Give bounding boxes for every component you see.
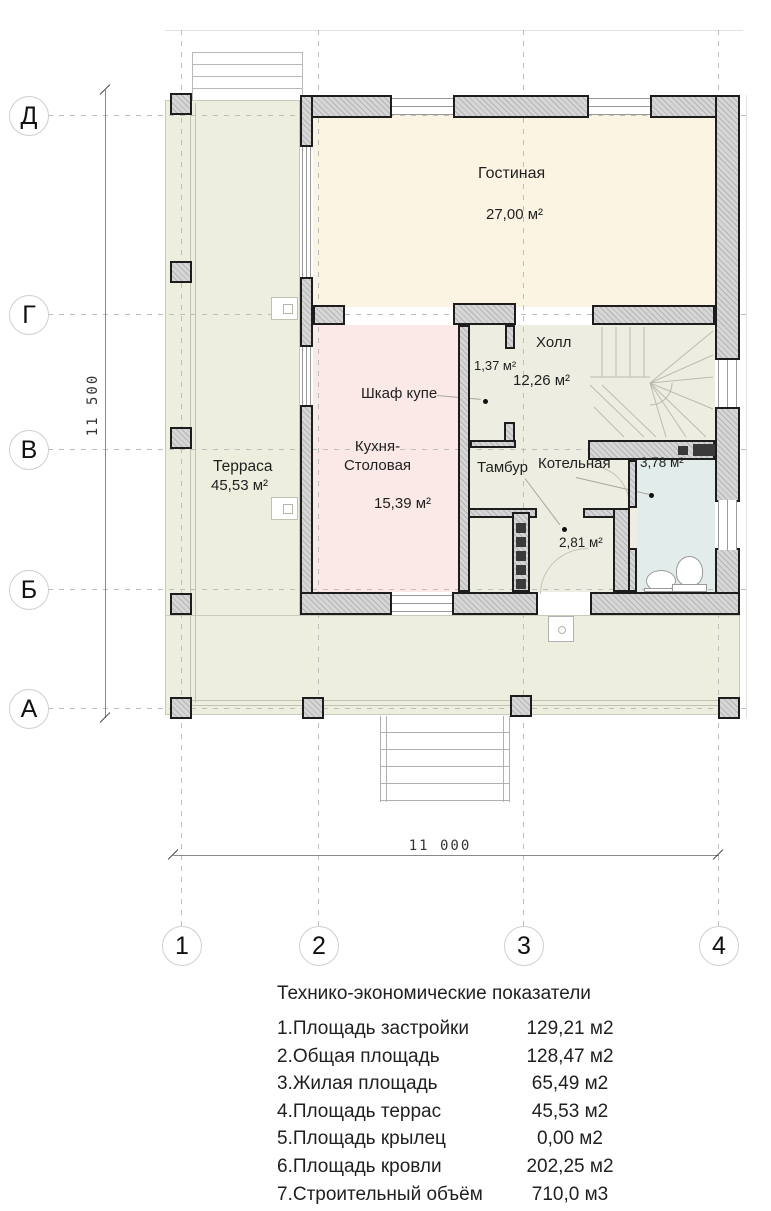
radiator-segment	[516, 523, 526, 533]
axis-label: 3	[517, 932, 531, 961]
wall-exterior-bottom	[452, 592, 538, 615]
room-label-living-area: 27,00 м²	[486, 206, 543, 223]
terrace-steps-top	[192, 52, 303, 100]
axis-label: 2	[312, 932, 326, 961]
window	[718, 360, 737, 407]
axis-label: В	[21, 436, 38, 465]
toilet-bowl	[676, 556, 703, 586]
room-label-terrace-area: 45,53 м²	[211, 477, 268, 494]
summary-row-value: 129,21 м2	[495, 1018, 645, 1040]
column	[510, 695, 532, 717]
equipment-block	[678, 446, 688, 455]
floor-plan-sheet: { "axes": { "rows": ["Д", "Г", "В", "Б",…	[0, 0, 771, 1200]
wall-interior-living	[313, 305, 345, 325]
summary-row-value: 0,00 м2	[495, 1128, 645, 1150]
room-label-vestibule-area: 2,81 м²	[559, 535, 603, 550]
column	[170, 93, 192, 115]
drain-symbol-circle	[558, 626, 566, 634]
summary-row: 1.Площадь застройки 129,21 м2	[277, 1018, 645, 1040]
wall-exterior-top	[453, 95, 589, 118]
wall-exterior-left	[300, 95, 313, 147]
axis-label: Б	[21, 576, 37, 605]
summary-row-value: 65,49 м2	[495, 1073, 645, 1095]
dimension-line-vertical	[105, 90, 106, 718]
radiator-segment	[516, 579, 526, 589]
grid-line-row-a	[48, 708, 748, 709]
axis-label: 4	[712, 932, 726, 961]
column	[170, 593, 192, 615]
terrace-railing-left-inner	[195, 103, 196, 703]
axis-bubble-col-2: 2	[299, 926, 339, 966]
axis-label: Д	[21, 102, 38, 131]
axis-label: А	[21, 695, 38, 724]
room-label-boiler-name: Котельная	[538, 455, 611, 472]
summary-row: 7.Строительный объём 710,0 м3	[277, 1184, 645, 1206]
column	[302, 697, 324, 719]
grid-line-col-1	[181, 30, 182, 932]
summary-row-label: 5.Площадь крылец	[277, 1128, 495, 1150]
axis-label: Г	[22, 301, 36, 330]
column	[170, 697, 192, 719]
room-label-kitchen-area: 15,39 м²	[374, 495, 431, 512]
summary-row-value: 710,0 м3	[495, 1184, 645, 1206]
summary-row: 6.Площадь кровли 202,25 м2	[277, 1156, 645, 1178]
wall-boiler-left	[628, 460, 637, 508]
wall-marker-glyph-upper	[283, 304, 293, 314]
room-label-hall-area: 12,26 м²	[513, 372, 570, 389]
wall-closet-bottom	[470, 440, 516, 448]
toilet-base	[672, 584, 707, 592]
summary-row: 5.Площадь крылец 0,00 м2	[277, 1128, 645, 1150]
wall-interior-living	[592, 305, 715, 325]
room-label-vestibule-name: Тамбур	[477, 459, 528, 476]
roof-outline-right	[746, 95, 747, 718]
label-anchor-dot-boiler	[649, 493, 654, 498]
axis-bubble-row-g: Г	[9, 295, 49, 335]
dimension-line-horizontal	[173, 855, 719, 856]
summary-row: 3.Жилая площадь 65,49 м2	[277, 1073, 645, 1095]
axis-bubble-row-v: В	[9, 430, 49, 470]
column	[170, 261, 192, 283]
summary-row-value: 128,47 м2	[495, 1046, 645, 1068]
room-label-living-name: Гостиная	[478, 165, 545, 183]
axis-bubble-row-d: Д	[9, 96, 49, 136]
wall-exterior-top	[300, 95, 392, 118]
summary-row-label: 4.Площадь террас	[277, 1101, 495, 1123]
wall-interior-living	[453, 303, 516, 325]
wall-closet-stub-bottom	[504, 422, 515, 442]
summary-row-value: 202,25 м2	[495, 1156, 645, 1178]
axis-bubble-col-1: 1	[162, 926, 202, 966]
room-label-closet-area: 1,37 м²	[474, 358, 516, 373]
porch-steps-bottom	[380, 716, 510, 802]
summary-row: 4.Площадь террас 45,53 м2	[277, 1101, 645, 1123]
window	[589, 98, 650, 115]
summary-table: 1.Площадь застройки 129,21 м2 2.Общая пл…	[277, 1018, 645, 1211]
window	[302, 147, 311, 277]
wall-marker-glyph-lower	[283, 504, 293, 514]
column	[718, 697, 740, 719]
grid-line-row-b	[48, 589, 748, 590]
terrace-railing-bottom-inner	[191, 705, 740, 706]
summary-row-label: 7.Строительный объём	[277, 1184, 495, 1206]
room-label-terrace-name: Терраса	[213, 458, 272, 476]
label-anchor-dot-vestibule	[562, 527, 567, 532]
room-label-closet-name: Шкаф купе	[361, 385, 437, 402]
window	[392, 98, 453, 115]
wall-exterior-right	[715, 95, 740, 360]
radiator-segment	[516, 565, 526, 575]
room-label-kitchen-name: Кухня-Столовая	[330, 437, 425, 475]
axis-bubble-col-4: 4	[699, 926, 739, 966]
summary-row-label: 2.Общая площадь	[277, 1046, 495, 1068]
wall-exterior-left	[300, 277, 313, 347]
axis-bubble-row-b: Б	[9, 570, 49, 610]
wall-closet-stub-top	[505, 325, 515, 349]
wall-boiler-left	[628, 548, 637, 592]
wall-exterior-right	[715, 407, 740, 502]
winder-staircase	[588, 325, 715, 439]
equipment-block	[693, 444, 715, 456]
wall-exterior-bottom	[590, 592, 740, 615]
radiator-segment	[516, 551, 526, 561]
summary-row: 2.Общая площадь 128,47 м2	[277, 1046, 645, 1068]
summary-row-label: 1.Площадь застройки	[277, 1018, 495, 1040]
porch-steps-rail-right	[503, 716, 510, 802]
summary-row-label: 6.Площадь кровли	[277, 1156, 495, 1178]
axis-bubble-col-3: 3	[504, 926, 544, 966]
room-label-hall-name: Холл	[536, 334, 571, 351]
window	[392, 595, 452, 612]
summary-row-value: 45,53 м2	[495, 1101, 645, 1123]
window	[302, 347, 311, 405]
dimension-height-label: 11 500	[85, 365, 101, 445]
roof-outline-top	[165, 30, 743, 31]
grid-line-col-2	[318, 30, 319, 932]
radiator-segment	[516, 537, 526, 547]
label-anchor-dot-closet	[483, 399, 488, 404]
summary-title: Технико-экономические показатели	[277, 983, 591, 1005]
porch-steps-rail-left	[380, 716, 387, 802]
wall-exterior-bottom	[300, 592, 392, 615]
room-label-boiler-area: 3,78 м²	[640, 455, 684, 470]
summary-row-label: 3.Жилая площадь	[277, 1073, 495, 1095]
wall-exterior-left	[300, 405, 313, 615]
window	[718, 500, 737, 550]
axis-bubble-row-a: А	[9, 689, 49, 729]
dimension-width-label: 11 000	[395, 838, 485, 854]
wall-kitchen-right	[458, 325, 470, 592]
axis-label: 1	[175, 932, 189, 961]
column	[170, 427, 192, 449]
grid-line-row-d	[48, 115, 748, 116]
terrace-railing-bottom-outer	[191, 700, 740, 701]
